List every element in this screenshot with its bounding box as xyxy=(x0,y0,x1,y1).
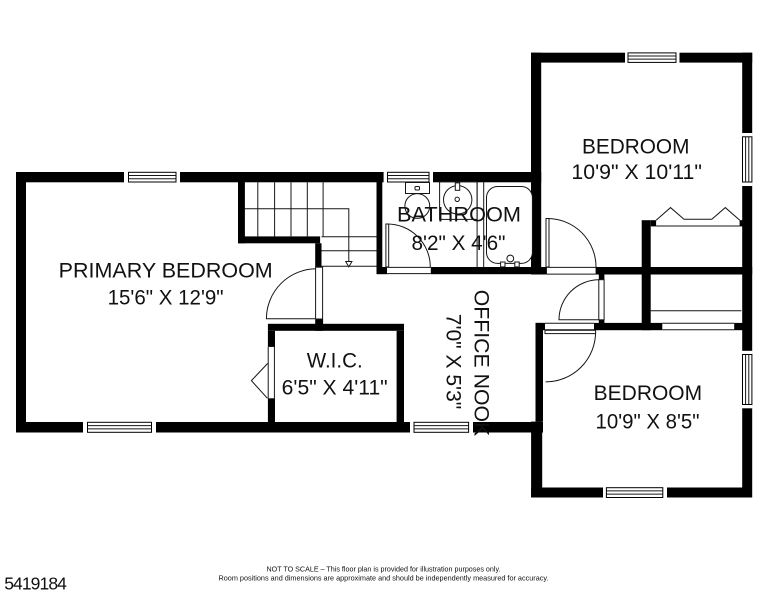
svg-text:5419184: 5419184 xyxy=(4,573,67,593)
svg-text:BATHROOM: BATHROOM xyxy=(397,204,521,227)
svg-text:OFFICE NOOK: OFFICE NOOK xyxy=(470,290,493,437)
svg-text:BEDROOM: BEDROOM xyxy=(582,136,690,159)
svg-text:W.I.C.: W.I.C. xyxy=(307,350,363,373)
svg-text:10'9" X 10'11": 10'9" X 10'11" xyxy=(571,161,702,184)
svg-text:6'5" X 4'11": 6'5" X 4'11" xyxy=(282,377,388,400)
svg-text:15'6" X 12'9": 15'6" X 12'9" xyxy=(108,286,224,309)
svg-text:7'0" X 5'3": 7'0" X 5'3" xyxy=(441,314,464,410)
svg-text:8'2" X 4'6": 8'2" X 4'6" xyxy=(412,232,506,255)
svg-text:BEDROOM: BEDROOM xyxy=(594,382,703,405)
svg-text:NOT TO SCALE – This floor plan: NOT TO SCALE – This floor plan is provid… xyxy=(267,565,501,574)
svg-text:Room positions and dimensions: Room positions and dimensions are approx… xyxy=(219,574,549,583)
svg-text:10'9" X 8'5": 10'9" X 8'5" xyxy=(596,410,700,433)
svg-text:PRIMARY BEDROOM: PRIMARY BEDROOM xyxy=(59,259,273,282)
